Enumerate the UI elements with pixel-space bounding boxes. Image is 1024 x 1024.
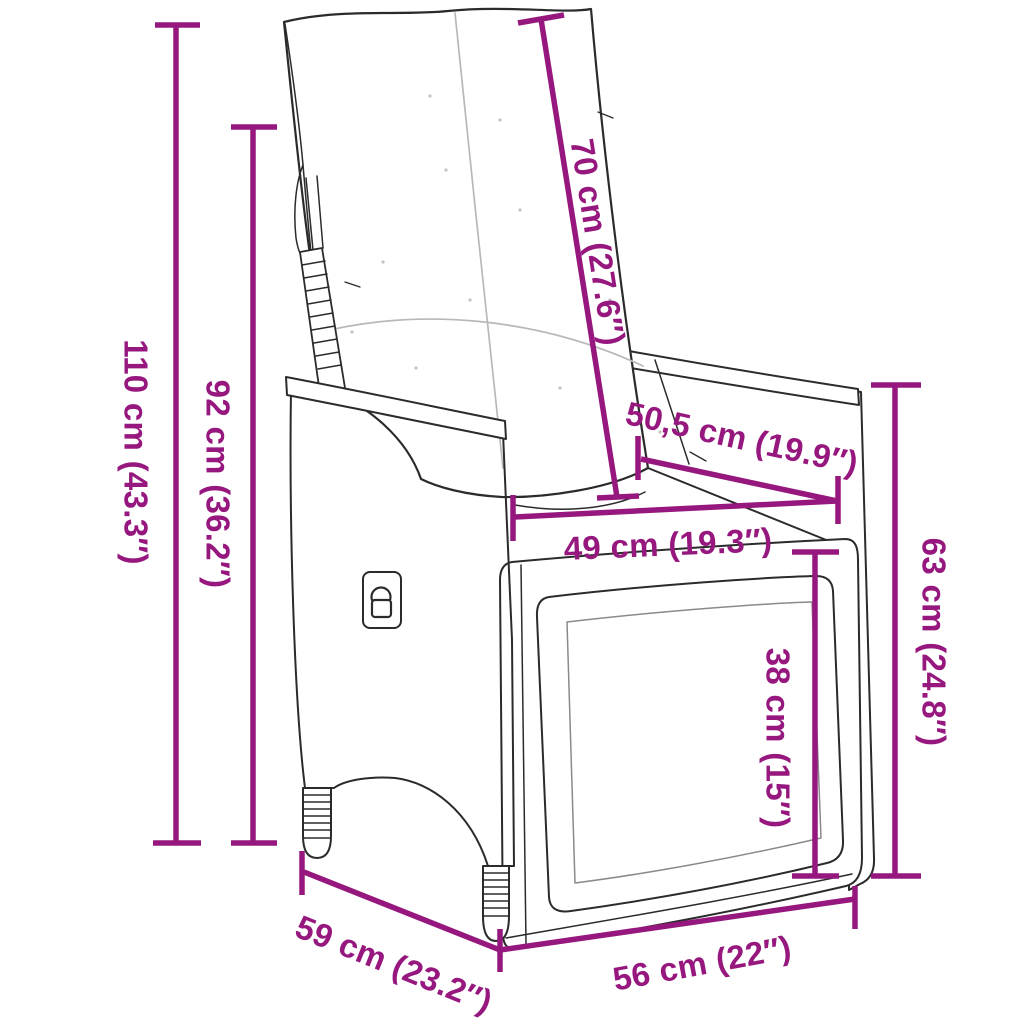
recline-knob bbox=[363, 572, 401, 628]
measurement-label-seat-height: 38 cm (15″) bbox=[762, 648, 795, 829]
right-armrest-cap bbox=[612, 348, 859, 405]
measurement-label-seat-width-back: 49 cm (19.3″) bbox=[563, 523, 773, 565]
dim-backrest-height-92 bbox=[231, 127, 277, 843]
product-dimension-diagram: 110 cm (43.3″) 92 cm (36.2″) 70 cm (27.6… bbox=[0, 0, 1024, 1024]
rear-left-leg bbox=[483, 866, 509, 941]
front-left-leg bbox=[303, 788, 331, 858]
measurement-label-total-height: 110 cm (43.3″) bbox=[120, 339, 153, 564]
measurement-label-armrest-height: 63 cm (24.8″) bbox=[918, 538, 951, 747]
measurement-label-backrest-height: 92 cm (36.2″) bbox=[202, 380, 235, 589]
dim-armrest-height-63 bbox=[871, 385, 921, 876]
dim-70-tick-bottom bbox=[597, 496, 639, 498]
seat-cushion bbox=[537, 576, 843, 911]
dim-total-height-110 bbox=[153, 25, 201, 843]
